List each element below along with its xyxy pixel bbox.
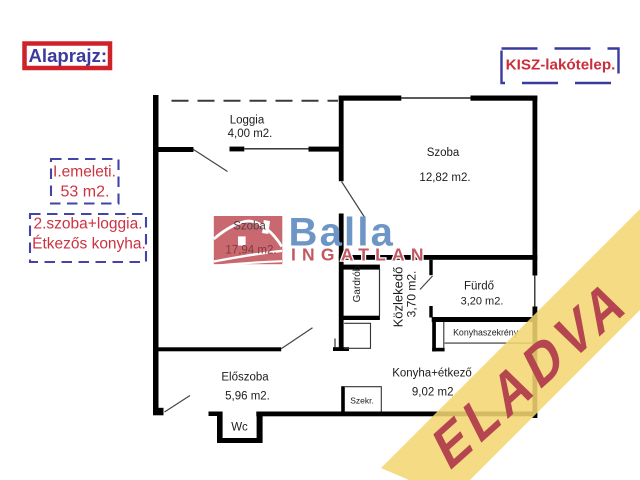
- svg-text:Alaprajz:: Alaprajz:: [29, 45, 108, 66]
- svg-text:KISZ-lakótelep.: KISZ-lakótelep.: [506, 57, 616, 74]
- svg-text:4,00 m2.: 4,00 m2.: [228, 128, 273, 140]
- svg-text:17,94 m2.: 17,94 m2.: [225, 245, 276, 257]
- svg-text:Fürdő: Fürdő: [464, 281, 494, 293]
- svg-text:Loggia: Loggia: [230, 115, 265, 127]
- svg-text:Konyha+étkező: Konyha+étkező: [392, 367, 472, 379]
- svg-text:3,70 m2.: 3,70 m2.: [405, 271, 419, 318]
- svg-text:Konyhaszekrény: Konyhaszekrény: [453, 328, 519, 338]
- svg-text:INGATLAN: INGATLAN: [291, 245, 430, 265]
- svg-text:Wc: Wc: [231, 422, 248, 434]
- svg-text:2.szoba+loggia.: 2.szoba+loggia.: [33, 216, 142, 233]
- svg-text:53 m2.: 53 m2.: [61, 183, 110, 200]
- svg-text:5,96 m2.: 5,96 m2.: [225, 390, 270, 402]
- svg-text:I.emeleti.: I.emeleti.: [53, 164, 116, 181]
- svg-text:Közlekedő: Közlekedő: [391, 267, 406, 328]
- svg-text:Előszoba: Előszoba: [221, 372, 269, 384]
- svg-text:Szoba: Szoba: [233, 221, 266, 233]
- svg-text:Szoba: Szoba: [427, 147, 460, 159]
- svg-text:Szekr.: Szekr.: [350, 396, 374, 406]
- svg-text:9,02 m2: 9,02 m2: [412, 386, 454, 398]
- svg-text:3,20 m2.: 3,20 m2.: [461, 296, 504, 308]
- svg-text:Étkezős konyha.: Étkezős konyha.: [32, 236, 146, 253]
- svg-text:Gardrób: Gardrób: [352, 265, 363, 302]
- svg-text:12,82 m2.: 12,82 m2.: [419, 172, 470, 184]
